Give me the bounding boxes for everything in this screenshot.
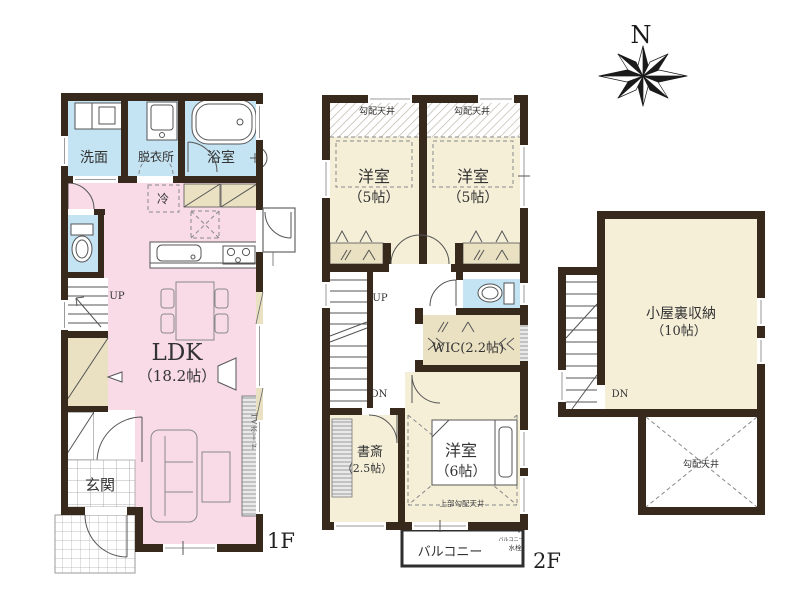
vanity-icon bbox=[75, 103, 122, 129]
sloped-ceiling-right-label: 勾配天井 bbox=[454, 105, 490, 117]
porch-tiles bbox=[55, 515, 135, 573]
compass-north-label: N bbox=[631, 21, 652, 49]
toilet-2f-icon bbox=[478, 283, 514, 304]
tv-board-label: TVボード bbox=[249, 413, 258, 451]
desk-icon bbox=[332, 419, 352, 497]
washer-icon bbox=[147, 102, 177, 140]
kitchen-counter bbox=[150, 242, 258, 268]
upper-sloped-label: 上部勾配天井 bbox=[440, 498, 485, 508]
balcony-tap-line2: 水栓 bbox=[509, 543, 523, 552]
balcony-tap-line1: バルコニー bbox=[499, 537, 524, 543]
compass-rose bbox=[599, 46, 687, 106]
room-wic bbox=[423, 315, 520, 365]
back-door bbox=[263, 208, 295, 266]
washroom-label: 洗面 bbox=[80, 150, 108, 166]
floor-2f-plan: 勾配天井 勾配天井 洋室 （5帖） 洋室 （5帖） UP DN WIC(2.2帖… bbox=[322, 95, 561, 573]
stairs-down-label-attic: DN bbox=[612, 389, 629, 400]
stairs-up-label-2f: UP bbox=[372, 293, 387, 304]
study-label: 書斎 bbox=[357, 444, 383, 460]
fridge-label: 冷 bbox=[157, 192, 169, 206]
bedroom-right-label: 洋室 bbox=[457, 167, 489, 186]
dressing-label: 脱衣所 bbox=[138, 149, 174, 164]
floor-2f-label: 2F bbox=[533, 549, 561, 573]
void-sloped-label: 勾配天井 bbox=[683, 458, 719, 470]
balcony-label: バルコニー bbox=[418, 545, 483, 560]
floor-plan-drawing: 洗面 脱衣所 浴室 冷 UP LDK （18.2帖） 玄関 TVボード 1F bbox=[0, 0, 800, 601]
bedroom6-size-label: （6帖） bbox=[436, 464, 487, 480]
bedroom-left-label: 洋室 bbox=[358, 167, 390, 186]
bathroom-label: 浴室 bbox=[207, 149, 235, 166]
floor-plan-page: 洗面 脱衣所 浴室 冷 UP LDK （18.2帖） 玄関 TVボード 1F bbox=[0, 0, 800, 601]
attic-storage-label: 小屋裏収納 bbox=[646, 305, 716, 322]
attic-plan: 小屋裏収納 （10帖） DN 勾配天井 bbox=[558, 211, 765, 515]
ldk-size-label: （18.2帖） bbox=[138, 367, 216, 385]
attic-storage-size: （10帖） bbox=[651, 324, 707, 339]
stairs-down-label-2f: DN bbox=[371, 389, 388, 400]
study-size-label: （2.5帖） bbox=[342, 462, 393, 475]
bedroom-left-size: （5帖） bbox=[349, 190, 400, 206]
sloped-ceiling-left-label: 勾配天井 bbox=[359, 105, 395, 117]
entrance-label: 玄関 bbox=[85, 476, 115, 494]
stairs-up-label-1f: UP bbox=[109, 291, 124, 302]
floor-1f-label: 1F bbox=[267, 529, 295, 553]
wic-label: WIC(2.2帖) bbox=[432, 341, 504, 356]
floor-1f-plan: 洗面 脱衣所 浴室 冷 UP LDK （18.2帖） 玄関 TVボード 1F bbox=[55, 93, 295, 573]
bathtub-icon bbox=[192, 100, 256, 144]
toilet-1f-icon bbox=[71, 224, 93, 262]
entrance-hall bbox=[94, 410, 135, 460]
bedroom6-label: 洋室 bbox=[445, 441, 477, 460]
ldk-label: LDK bbox=[152, 340, 204, 366]
bedroom-right-size: （5帖） bbox=[448, 190, 499, 206]
